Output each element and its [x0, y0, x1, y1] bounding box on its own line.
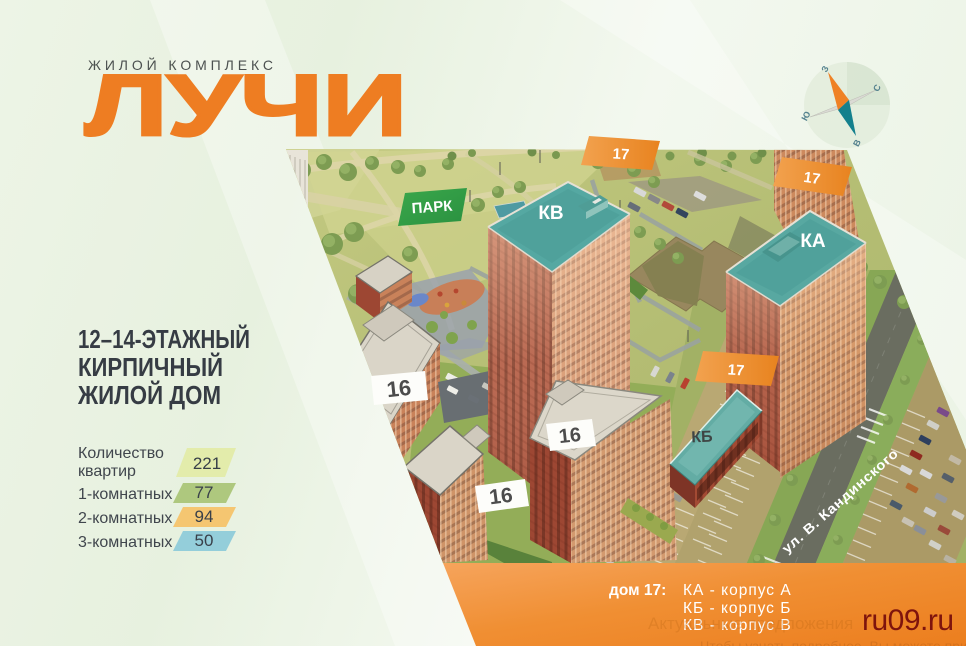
- svg-text:КА: КА: [800, 231, 826, 252]
- svg-text:КИРПИЧНЫЙ: КИРПИЧНЫЙ: [78, 352, 223, 382]
- svg-text:2-комнатных: 2-комнатных: [78, 510, 172, 527]
- svg-text:ЛУЧИ: ЛУЧИ: [85, 58, 407, 154]
- svg-text:КА - корпус А: КА - корпус А: [683, 582, 792, 599]
- svg-text:50: 50: [195, 531, 214, 550]
- svg-text:КВ: КВ: [538, 203, 563, 224]
- svg-text:1-комнатных: 1-комнатных: [78, 486, 172, 503]
- svg-text:94: 94: [195, 507, 214, 526]
- svg-text:квартир: квартир: [78, 463, 136, 480]
- svg-text:дом 17:: дом 17:: [609, 582, 666, 599]
- svg-text:Актуальные предложения: Актуальные предложения: [648, 614, 853, 633]
- svg-text:12–14-ЭТАЖНЫЙ: 12–14-ЭТАЖНЫЙ: [78, 324, 250, 354]
- svg-text:Количество: Количество: [78, 445, 164, 462]
- svg-text:17: 17: [612, 146, 630, 164]
- svg-text:77: 77: [195, 483, 214, 502]
- svg-text:16: 16: [385, 375, 412, 402]
- svg-text:17: 17: [727, 361, 745, 379]
- svg-text:3-комнатных: 3-комнатных: [78, 534, 172, 551]
- svg-text:16: 16: [488, 484, 514, 510]
- svg-text:Чтобы узнать подробнее, Вы мож: Чтобы узнать подробнее, Вы можете пригла…: [700, 638, 966, 646]
- svg-text:ЖИЛОЙ ДОМ: ЖИЛОЙ ДОМ: [77, 380, 221, 410]
- svg-text:17: 17: [802, 169, 821, 188]
- svg-text:221: 221: [193, 454, 221, 473]
- svg-text:16: 16: [558, 424, 582, 448]
- svg-text:ПАРК: ПАРК: [411, 198, 454, 218]
- svg-text:КБ: КБ: [691, 429, 713, 447]
- svg-text:ru09.ru: ru09.ru: [862, 604, 954, 637]
